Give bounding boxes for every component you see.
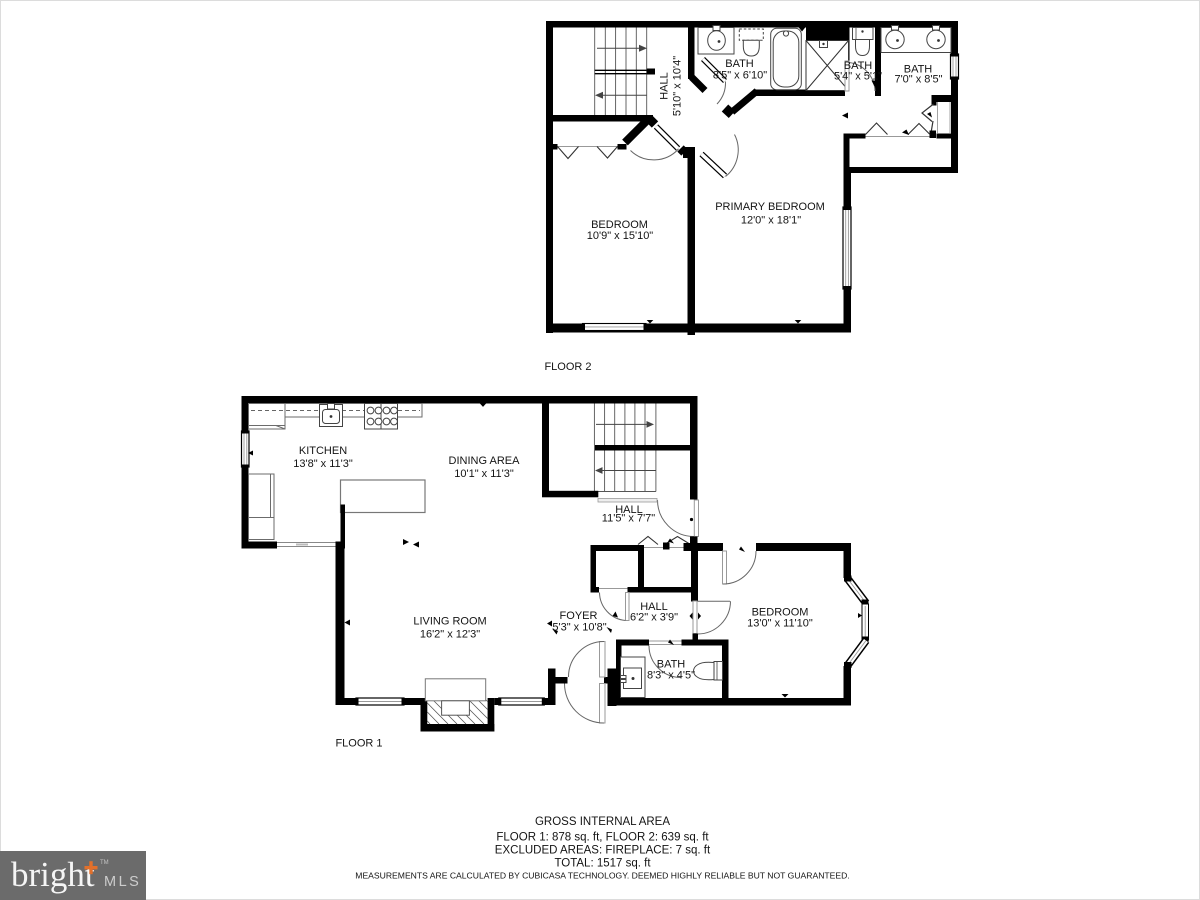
svg-text:TM: TM	[100, 860, 109, 866]
svg-text:BATH: BATH	[725, 58, 754, 70]
svg-text:DINING AREA: DINING AREA	[449, 455, 521, 467]
svg-text:13'8" x 11'3": 13'8" x 11'3"	[293, 458, 353, 470]
svg-text:16'2" x 12'3": 16'2" x 12'3"	[420, 629, 480, 641]
svg-text:5'3" x 10'8": 5'3" x 10'8"	[552, 622, 606, 634]
svg-text:6'2" x 3'9": 6'2" x 3'9"	[630, 612, 678, 624]
svg-text:FLOOR 2: FLOOR 2	[544, 361, 591, 373]
svg-text:FLOOR 1: FLOOR 1	[335, 738, 382, 750]
svg-text:EXCLUDED AREAS: FIREPLACE: 7 s: EXCLUDED AREAS: FIREPLACE: 7 sq. ft	[495, 845, 711, 857]
svg-text:MEASUREMENTS ARE CALCULATED BY: MEASUREMENTS ARE CALCULATED BY CUBICASA …	[355, 871, 849, 881]
svg-text:MLS: MLS	[104, 874, 141, 890]
svg-text:7'0" x 8'5": 7'0" x 8'5"	[894, 74, 942, 86]
svg-text:10'1" x 11'3": 10'1" x 11'3"	[454, 468, 514, 480]
svg-text:LIVING ROOM: LIVING ROOM	[413, 616, 486, 628]
svg-text:13'0" x 11'10": 13'0" x 11'10"	[747, 618, 813, 630]
svg-text:GROSS INTERNAL AREA: GROSS INTERNAL AREA	[535, 816, 670, 828]
svg-text:FLOOR 1: 878 sq. ft, FLOOR 2:: FLOOR 1: 878 sq. ft, FLOOR 2: 639 sq. ft	[496, 832, 709, 844]
svg-text:TOTAL: 1517 sq. ft: TOTAL: 1517 sq. ft	[554, 858, 651, 870]
svg-text:5'4" x 5'1": 5'4" x 5'1"	[834, 71, 882, 83]
svg-text:PRIMARY BEDROOM: PRIMARY BEDROOM	[715, 201, 825, 213]
svg-text:HALL: HALL	[659, 72, 671, 100]
svg-text:5'10" x 10'4": 5'10" x 10'4"	[672, 56, 684, 116]
svg-text:10'9" x 15'10": 10'9" x 15'10"	[587, 230, 654, 242]
svg-text:KITCHEN: KITCHEN	[299, 445, 347, 457]
svg-text:8'5" x 6'10": 8'5" x 6'10"	[713, 70, 767, 82]
svg-text:bright: bright	[11, 855, 95, 894]
svg-text:11'5" x 7'7": 11'5" x 7'7"	[602, 513, 655, 525]
svg-text:FOYER: FOYER	[560, 610, 598, 622]
svg-text:12'0" x 18'1": 12'0" x 18'1"	[741, 215, 801, 227]
svg-text:8'3" x 4'5": 8'3" x 4'5"	[647, 670, 695, 682]
